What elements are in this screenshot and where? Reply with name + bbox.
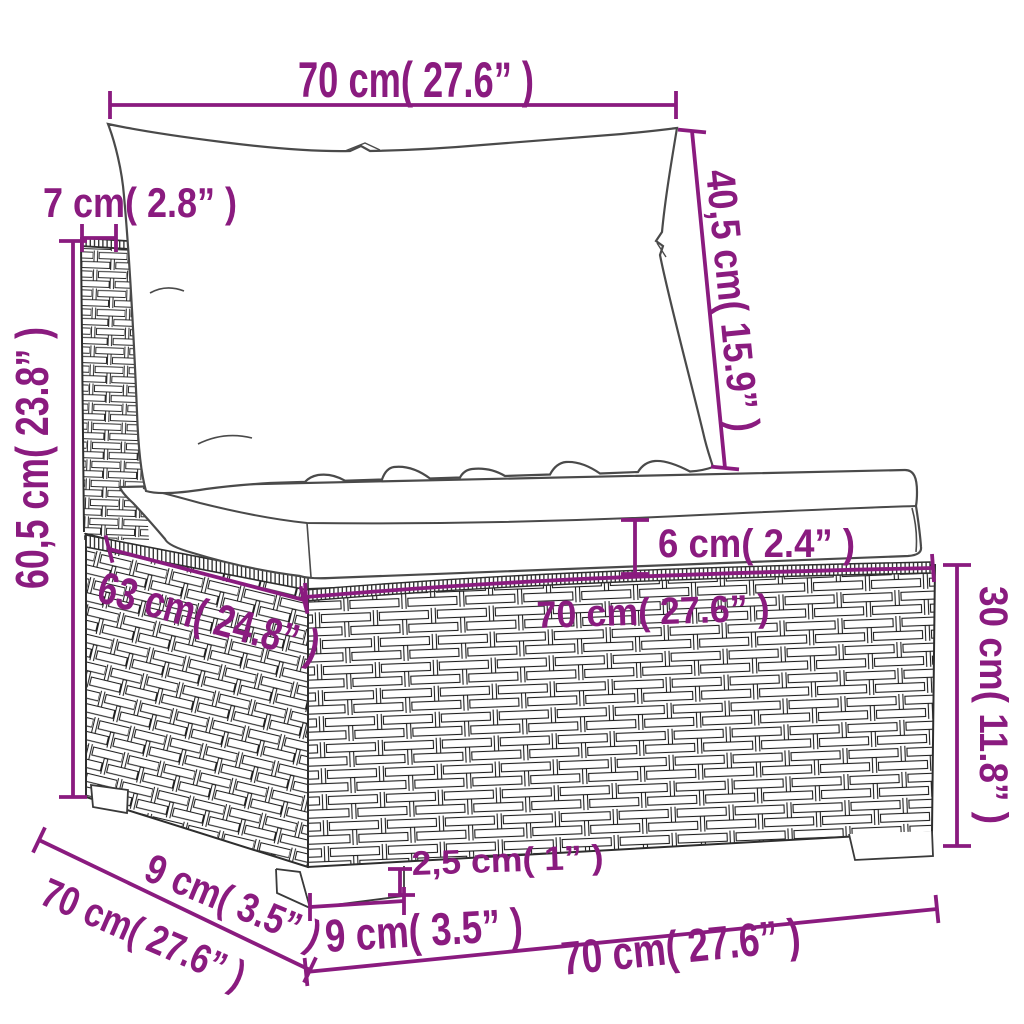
- svg-text:30 cm( 11.8” ): 30 cm( 11.8” ): [971, 586, 1015, 824]
- svg-text:70 cm( 27.6” ): 70 cm( 27.6” ): [536, 588, 770, 637]
- svg-text:60,5 cm( 23.8” ): 60,5 cm( 23.8” ): [6, 327, 58, 589]
- svg-text:7 cm( 2.8” ): 7 cm( 2.8” ): [43, 179, 237, 226]
- svg-text:6 cm( 2.4” ): 6 cm( 2.4” ): [658, 522, 855, 566]
- svg-text:70 cm( 27.6” ): 70 cm( 27.6” ): [298, 52, 534, 108]
- svg-text:2,5 cm( 1” ): 2,5 cm( 1” ): [411, 838, 604, 883]
